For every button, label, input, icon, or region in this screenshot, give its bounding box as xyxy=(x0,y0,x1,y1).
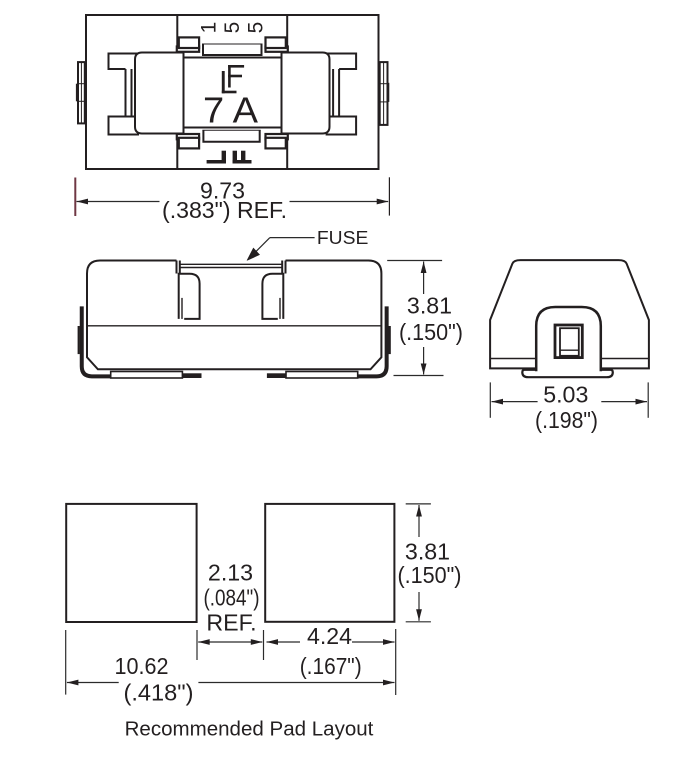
svg-text:5: 5 xyxy=(245,22,268,34)
svg-text:(.167"): (.167") xyxy=(300,653,362,679)
svg-text:(.150"): (.150") xyxy=(398,562,462,588)
svg-text:1: 1 xyxy=(198,22,221,34)
svg-text:REF.: REF. xyxy=(206,610,256,636)
svg-text:3.81: 3.81 xyxy=(405,539,450,565)
svg-text:Recommended Pad Layout: Recommended Pad Layout xyxy=(125,717,374,740)
svg-text:3.81: 3.81 xyxy=(407,293,452,319)
svg-text:(.418"): (.418") xyxy=(124,680,194,706)
svg-text:2.13: 2.13 xyxy=(208,560,253,586)
svg-text:(.383") REF.: (.383") REF. xyxy=(162,197,287,223)
svg-text:7 A: 7 A xyxy=(203,89,259,130)
svg-text:10.62: 10.62 xyxy=(115,653,169,679)
svg-text:FUSE: FUSE xyxy=(317,228,369,248)
svg-text:5: 5 xyxy=(221,22,244,34)
svg-text:(.198"): (.198") xyxy=(535,407,598,433)
svg-text:4.24: 4.24 xyxy=(307,623,352,649)
svg-text:(.084"): (.084") xyxy=(204,585,260,611)
svg-text:(.150"): (.150") xyxy=(399,319,463,345)
svg-text:5.03: 5.03 xyxy=(543,381,588,407)
